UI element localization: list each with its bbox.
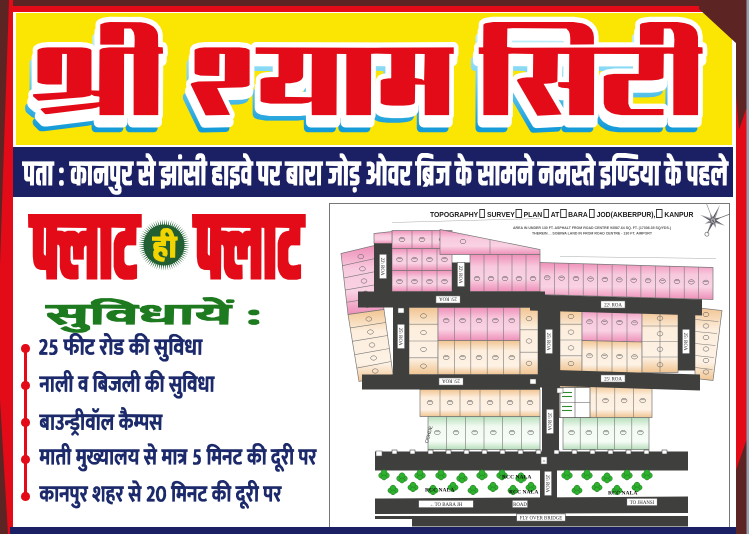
- svg-text:22\ ROA: 22\ ROA: [604, 303, 622, 308]
- svg-text:ROAD: ROAD: [513, 503, 527, 508]
- svg-text:25\ ROA: 25\ ROA: [682, 332, 687, 350]
- svg-text:25\ ROA: 25\ ROA: [546, 412, 551, 430]
- svg-text:22\ ROA: 22\ ROA: [379, 257, 384, 275]
- svg-text:RCC NALA: RCC NALA: [502, 474, 531, 480]
- svg-text:25\ ROA: 25\ ROA: [439, 295, 457, 300]
- svg-text:25\ ROA: 25\ ROA: [545, 332, 550, 350]
- svg-text:←TO BARA JH: ←TO BARA JH: [430, 503, 463, 508]
- svg-text:25\ ROA: 25\ ROA: [604, 377, 622, 382]
- svg-text:N: N: [712, 218, 715, 223]
- svg-text:TO JHANSI: TO JHANSI: [630, 501, 655, 506]
- svg-text:25\ ROA: 25\ ROA: [544, 474, 549, 492]
- svg-text:RCC NALA: RCC NALA: [509, 489, 538, 495]
- svg-text:RCC NALA: RCC NALA: [608, 490, 637, 496]
- svg-text:RCC NALA: RCC NALA: [425, 487, 454, 493]
- svg-text:22\ ROA: 22\ ROA: [457, 265, 462, 283]
- svg-text:25\ ROA: 25\ ROA: [397, 327, 402, 345]
- svg-text:FLY OVER BRIDGE: FLY OVER BRIDGE: [520, 516, 563, 521]
- svg-text:25\ ROA: 25\ ROA: [442, 377, 460, 382]
- svg-text:=: =: [543, 459, 546, 464]
